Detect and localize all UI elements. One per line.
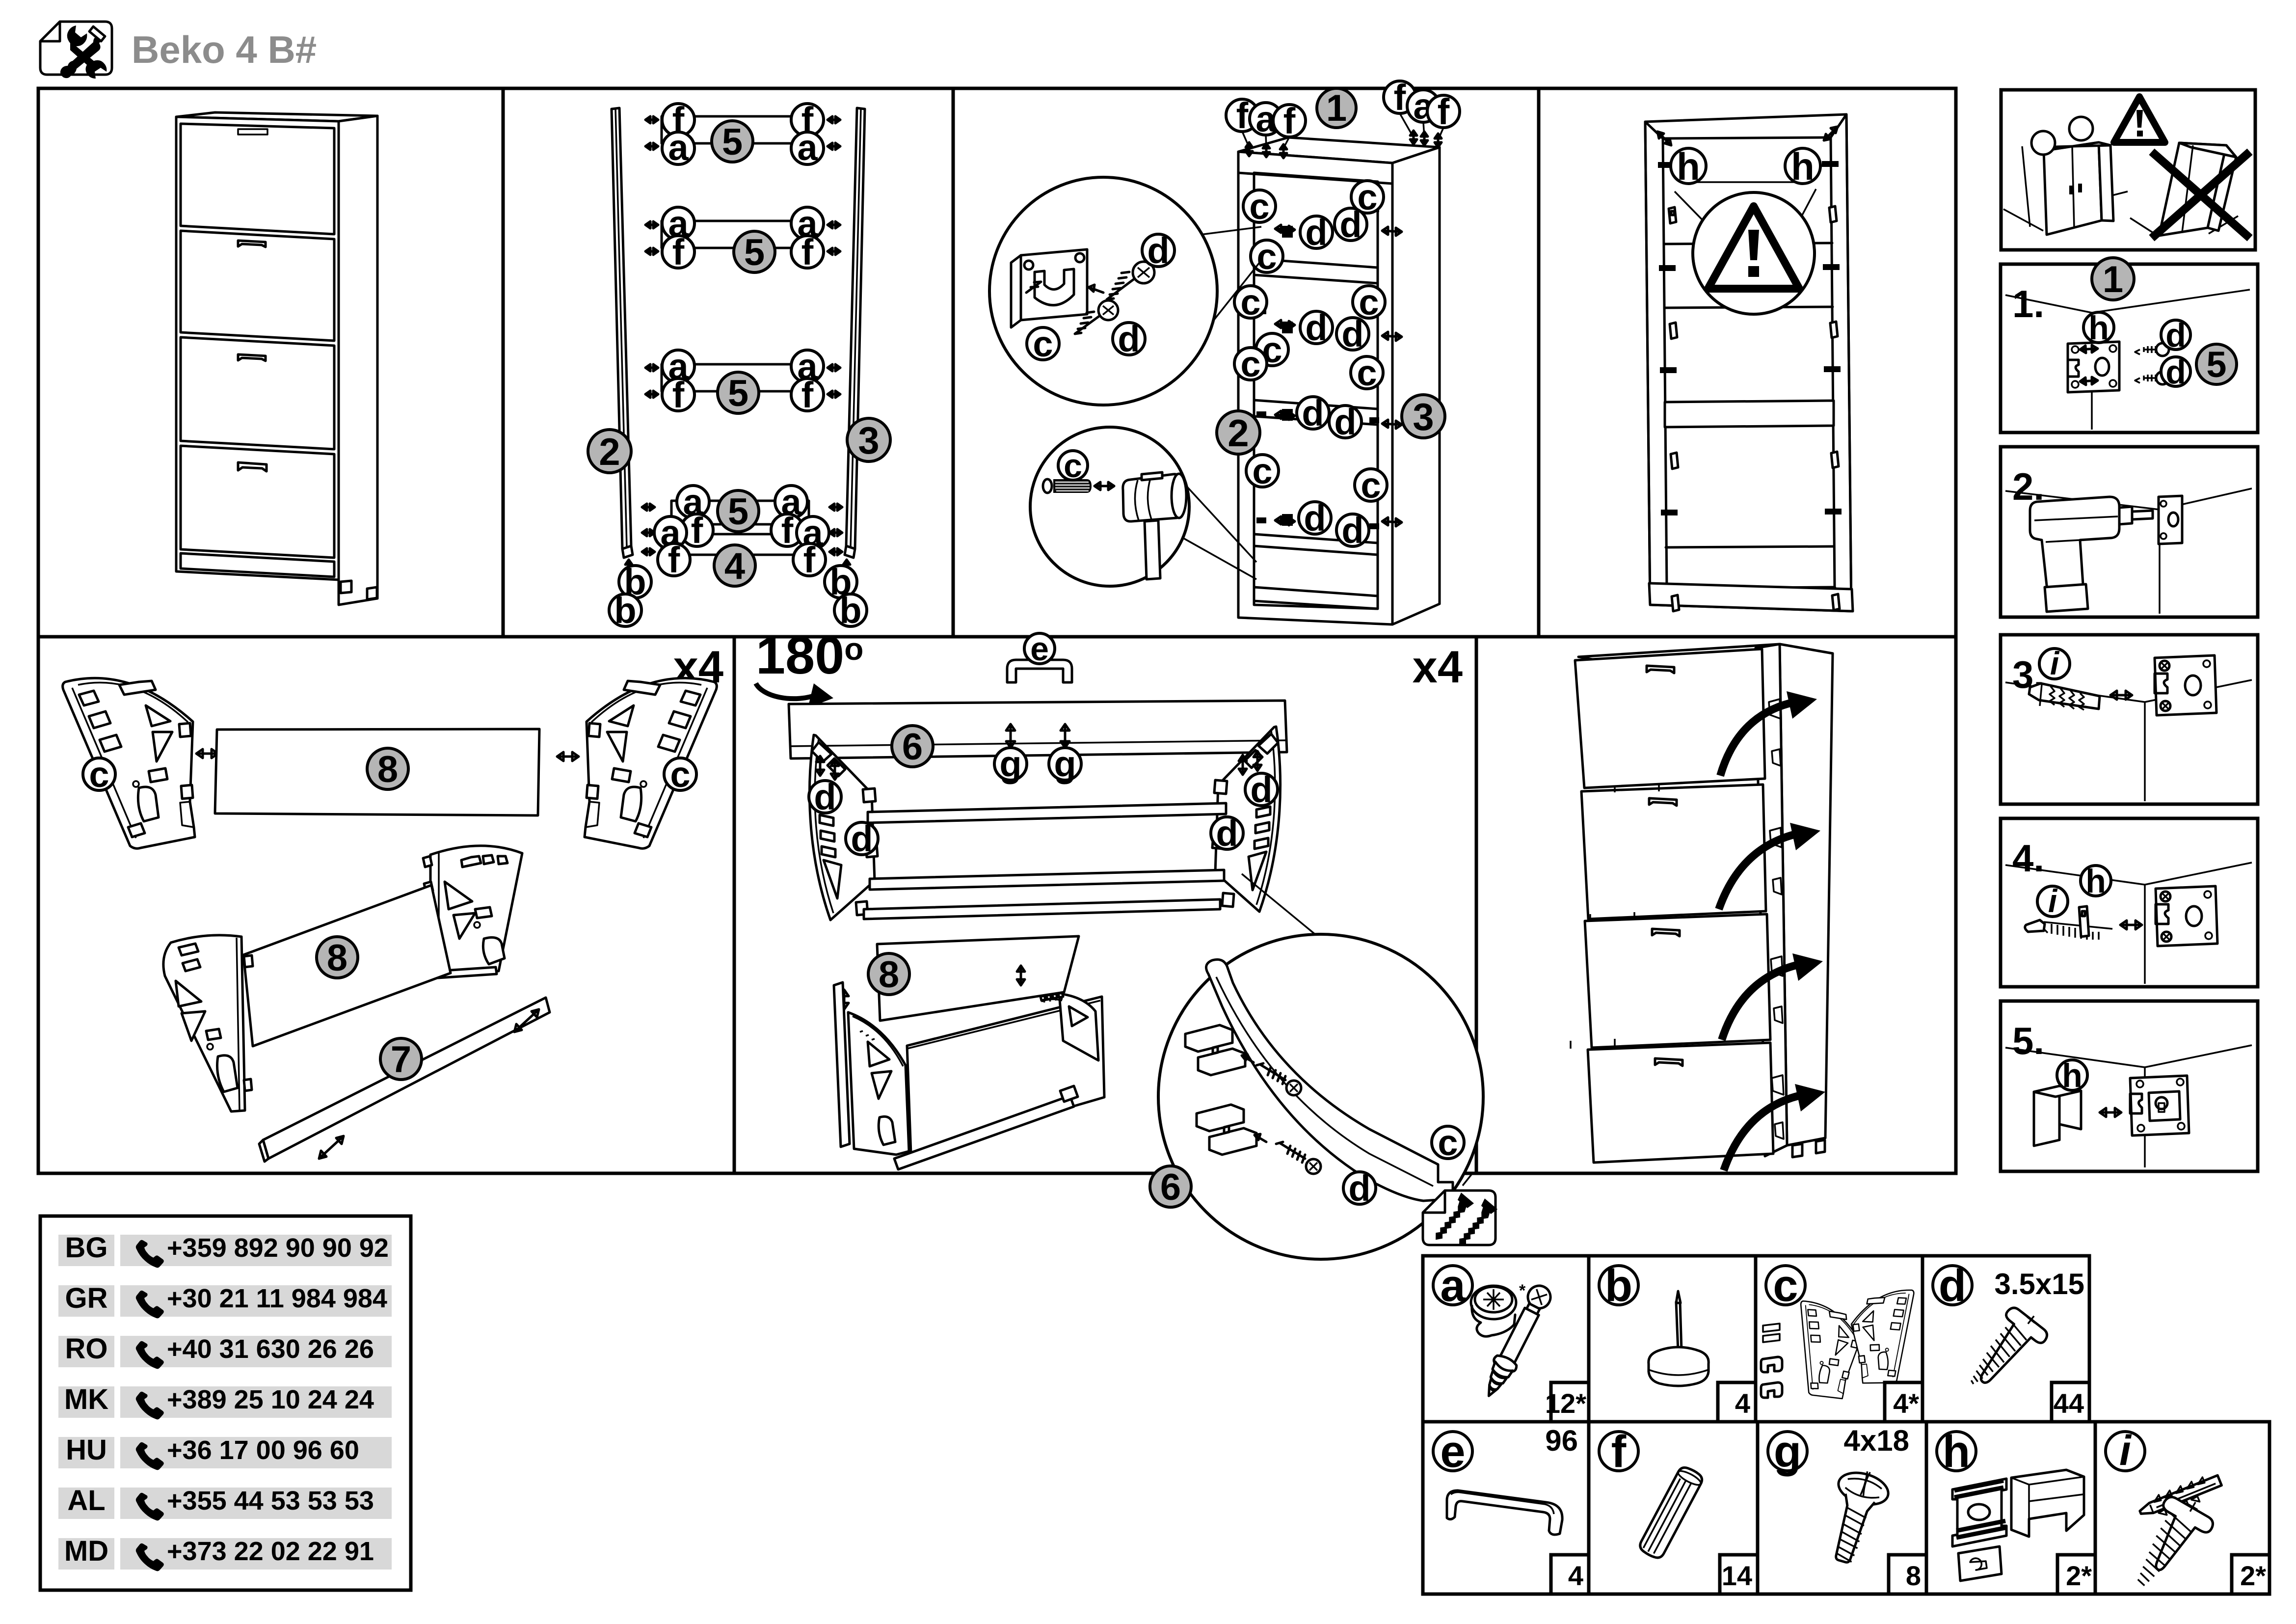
svg-text:c: c [1361, 465, 1381, 506]
svg-text:14: 14 [1722, 1560, 1752, 1591]
svg-text:g: g [1774, 1427, 1801, 1477]
svg-text:MK: MK [64, 1383, 108, 1415]
svg-text:f: f [801, 232, 814, 272]
svg-text:d: d [1339, 204, 1362, 245]
svg-text:d: d [1348, 1168, 1370, 1209]
svg-text:f: f [1236, 95, 1249, 136]
svg-text:7: 7 [391, 1039, 411, 1081]
svg-text:c: c [1240, 282, 1260, 323]
svg-text:c: c [1256, 236, 1277, 277]
svg-text:b: b [839, 590, 861, 631]
svg-text:+359 892 90 90 92: +359 892 90 90 92 [167, 1233, 389, 1263]
svg-text:c: c [1252, 451, 1272, 491]
svg-text:*: * [1519, 1281, 1526, 1300]
svg-text:c: c [89, 754, 109, 795]
svg-text:g: g [1054, 744, 1076, 785]
svg-text:8: 8 [327, 937, 347, 979]
svg-text:44: 44 [2054, 1388, 2084, 1419]
svg-text:c: c [1033, 324, 1053, 364]
svg-text:d: d [1250, 769, 1272, 810]
svg-text:c: c [1249, 186, 1269, 227]
svg-text:f: f [1283, 101, 1296, 141]
svg-text:4: 4 [1735, 1388, 1750, 1419]
svg-text:d: d [851, 818, 873, 859]
svg-text:MD: MD [64, 1535, 108, 1567]
svg-text:x4: x4 [1413, 642, 1463, 692]
svg-text:5: 5 [744, 232, 765, 273]
svg-text:a: a [797, 127, 818, 168]
svg-text:b: b [1605, 1261, 1632, 1311]
svg-text:2: 2 [1228, 411, 1249, 455]
svg-text:+355 44 53 53 53: +355 44 53 53 53 [167, 1486, 374, 1516]
svg-text:d: d [2165, 353, 2186, 391]
svg-text:2: 2 [599, 430, 620, 473]
svg-text:AL: AL [67, 1485, 105, 1516]
svg-text:2*: 2* [2240, 1560, 2266, 1591]
svg-text:c: c [1357, 352, 1377, 393]
svg-text:f: f [801, 375, 814, 415]
svg-text:HU: HU [66, 1434, 107, 1466]
svg-text:8: 8 [377, 749, 398, 790]
svg-text:5.: 5. [2012, 1019, 2044, 1062]
svg-text:e: e [1440, 1427, 1465, 1477]
svg-text:8: 8 [879, 954, 899, 996]
svg-text:h: h [1791, 145, 1815, 188]
svg-text:8: 8 [1906, 1560, 1921, 1591]
svg-text:h: h [1677, 145, 1700, 188]
svg-text:f: f [1611, 1427, 1627, 1477]
svg-text:d: d [1305, 307, 1327, 348]
svg-text:RO: RO [65, 1333, 108, 1365]
svg-text:+36 17 00 96 60: +36 17 00 96 60 [167, 1435, 359, 1465]
svg-text:d: d [814, 777, 836, 817]
svg-text:d: d [2165, 317, 2186, 354]
svg-text:d: d [1302, 393, 1324, 433]
svg-text:c: c [1438, 1122, 1458, 1163]
svg-text:d: d [1334, 402, 1356, 442]
svg-text:12*: 12* [1545, 1388, 1586, 1419]
svg-text:d: d [1341, 314, 1363, 354]
svg-text:h: h [2088, 309, 2109, 347]
svg-text:1: 1 [1326, 87, 1347, 129]
svg-text:+30 21 11 984 984: +30 21 11 984 984 [167, 1284, 387, 1313]
svg-text:5: 5 [728, 491, 748, 533]
svg-text:c: c [1240, 344, 1260, 384]
svg-text:i: i [2119, 1427, 2132, 1474]
svg-text:4: 4 [724, 545, 745, 587]
svg-text:d: d [1147, 230, 1169, 271]
svg-text:a: a [1440, 1261, 1466, 1311]
svg-text:d: d [1118, 319, 1140, 359]
svg-text:4*: 4* [1893, 1388, 1919, 1419]
svg-text:f: f [1394, 77, 1406, 118]
svg-text:Beko 4 B#: Beko 4 B# [132, 28, 317, 71]
svg-text:f: f [1438, 91, 1450, 132]
svg-text:4: 4 [1568, 1560, 1583, 1591]
svg-text:3: 3 [858, 419, 879, 462]
svg-text:d: d [1939, 1261, 1966, 1311]
svg-text:3: 3 [1413, 395, 1434, 438]
svg-text:f: f [781, 510, 794, 551]
svg-text:6: 6 [902, 726, 923, 768]
svg-text:5: 5 [722, 121, 743, 163]
svg-text:c: c [670, 754, 690, 795]
svg-text:h: h [2085, 863, 2106, 900]
svg-text:h: h [1943, 1427, 1970, 1477]
svg-text:f: f [672, 375, 685, 415]
svg-text:d: d [1305, 212, 1327, 253]
svg-text:f: f [691, 510, 703, 551]
svg-text:+389 25 10 24 24: +389 25 10 24 24 [167, 1385, 374, 1414]
svg-text:96: 96 [1545, 1424, 1578, 1457]
svg-text:+40 31 630 26 26: +40 31 630 26 26 [167, 1334, 374, 1364]
svg-text:6: 6 [1160, 1166, 1181, 1208]
svg-text:2*: 2* [2066, 1560, 2092, 1591]
svg-text:c: c [1773, 1261, 1798, 1311]
svg-text:b: b [614, 590, 636, 631]
svg-text:4x18: 4x18 [1844, 1424, 1909, 1457]
svg-text:4.: 4. [2012, 837, 2044, 880]
svg-text:1.: 1. [2012, 282, 2044, 325]
svg-text:3.5x15: 3.5x15 [1994, 1268, 2084, 1300]
svg-text:d: d [1304, 498, 1326, 539]
svg-text:f: f [668, 540, 680, 580]
svg-text:5: 5 [2206, 344, 2226, 385]
svg-text:f: f [803, 540, 816, 580]
svg-text:c: c [1064, 447, 1082, 485]
svg-text:i: i [2048, 883, 2058, 919]
svg-text:a: a [668, 127, 689, 168]
svg-text:h: h [2062, 1057, 2082, 1094]
svg-text:e: e [1030, 630, 1049, 668]
svg-text:+373 22 02 22 91: +373 22 02 22 91 [167, 1537, 374, 1566]
svg-text:BG: BG [65, 1232, 108, 1264]
svg-text:1: 1 [2103, 259, 2123, 300]
svg-text:5: 5 [728, 373, 748, 414]
svg-text:d: d [1341, 510, 1363, 551]
svg-text:GR: GR [65, 1282, 108, 1314]
svg-text:i: i [2050, 645, 2060, 681]
svg-text:f: f [672, 232, 685, 272]
svg-text:g: g [999, 744, 1021, 785]
svg-text:d: d [1216, 813, 1238, 854]
